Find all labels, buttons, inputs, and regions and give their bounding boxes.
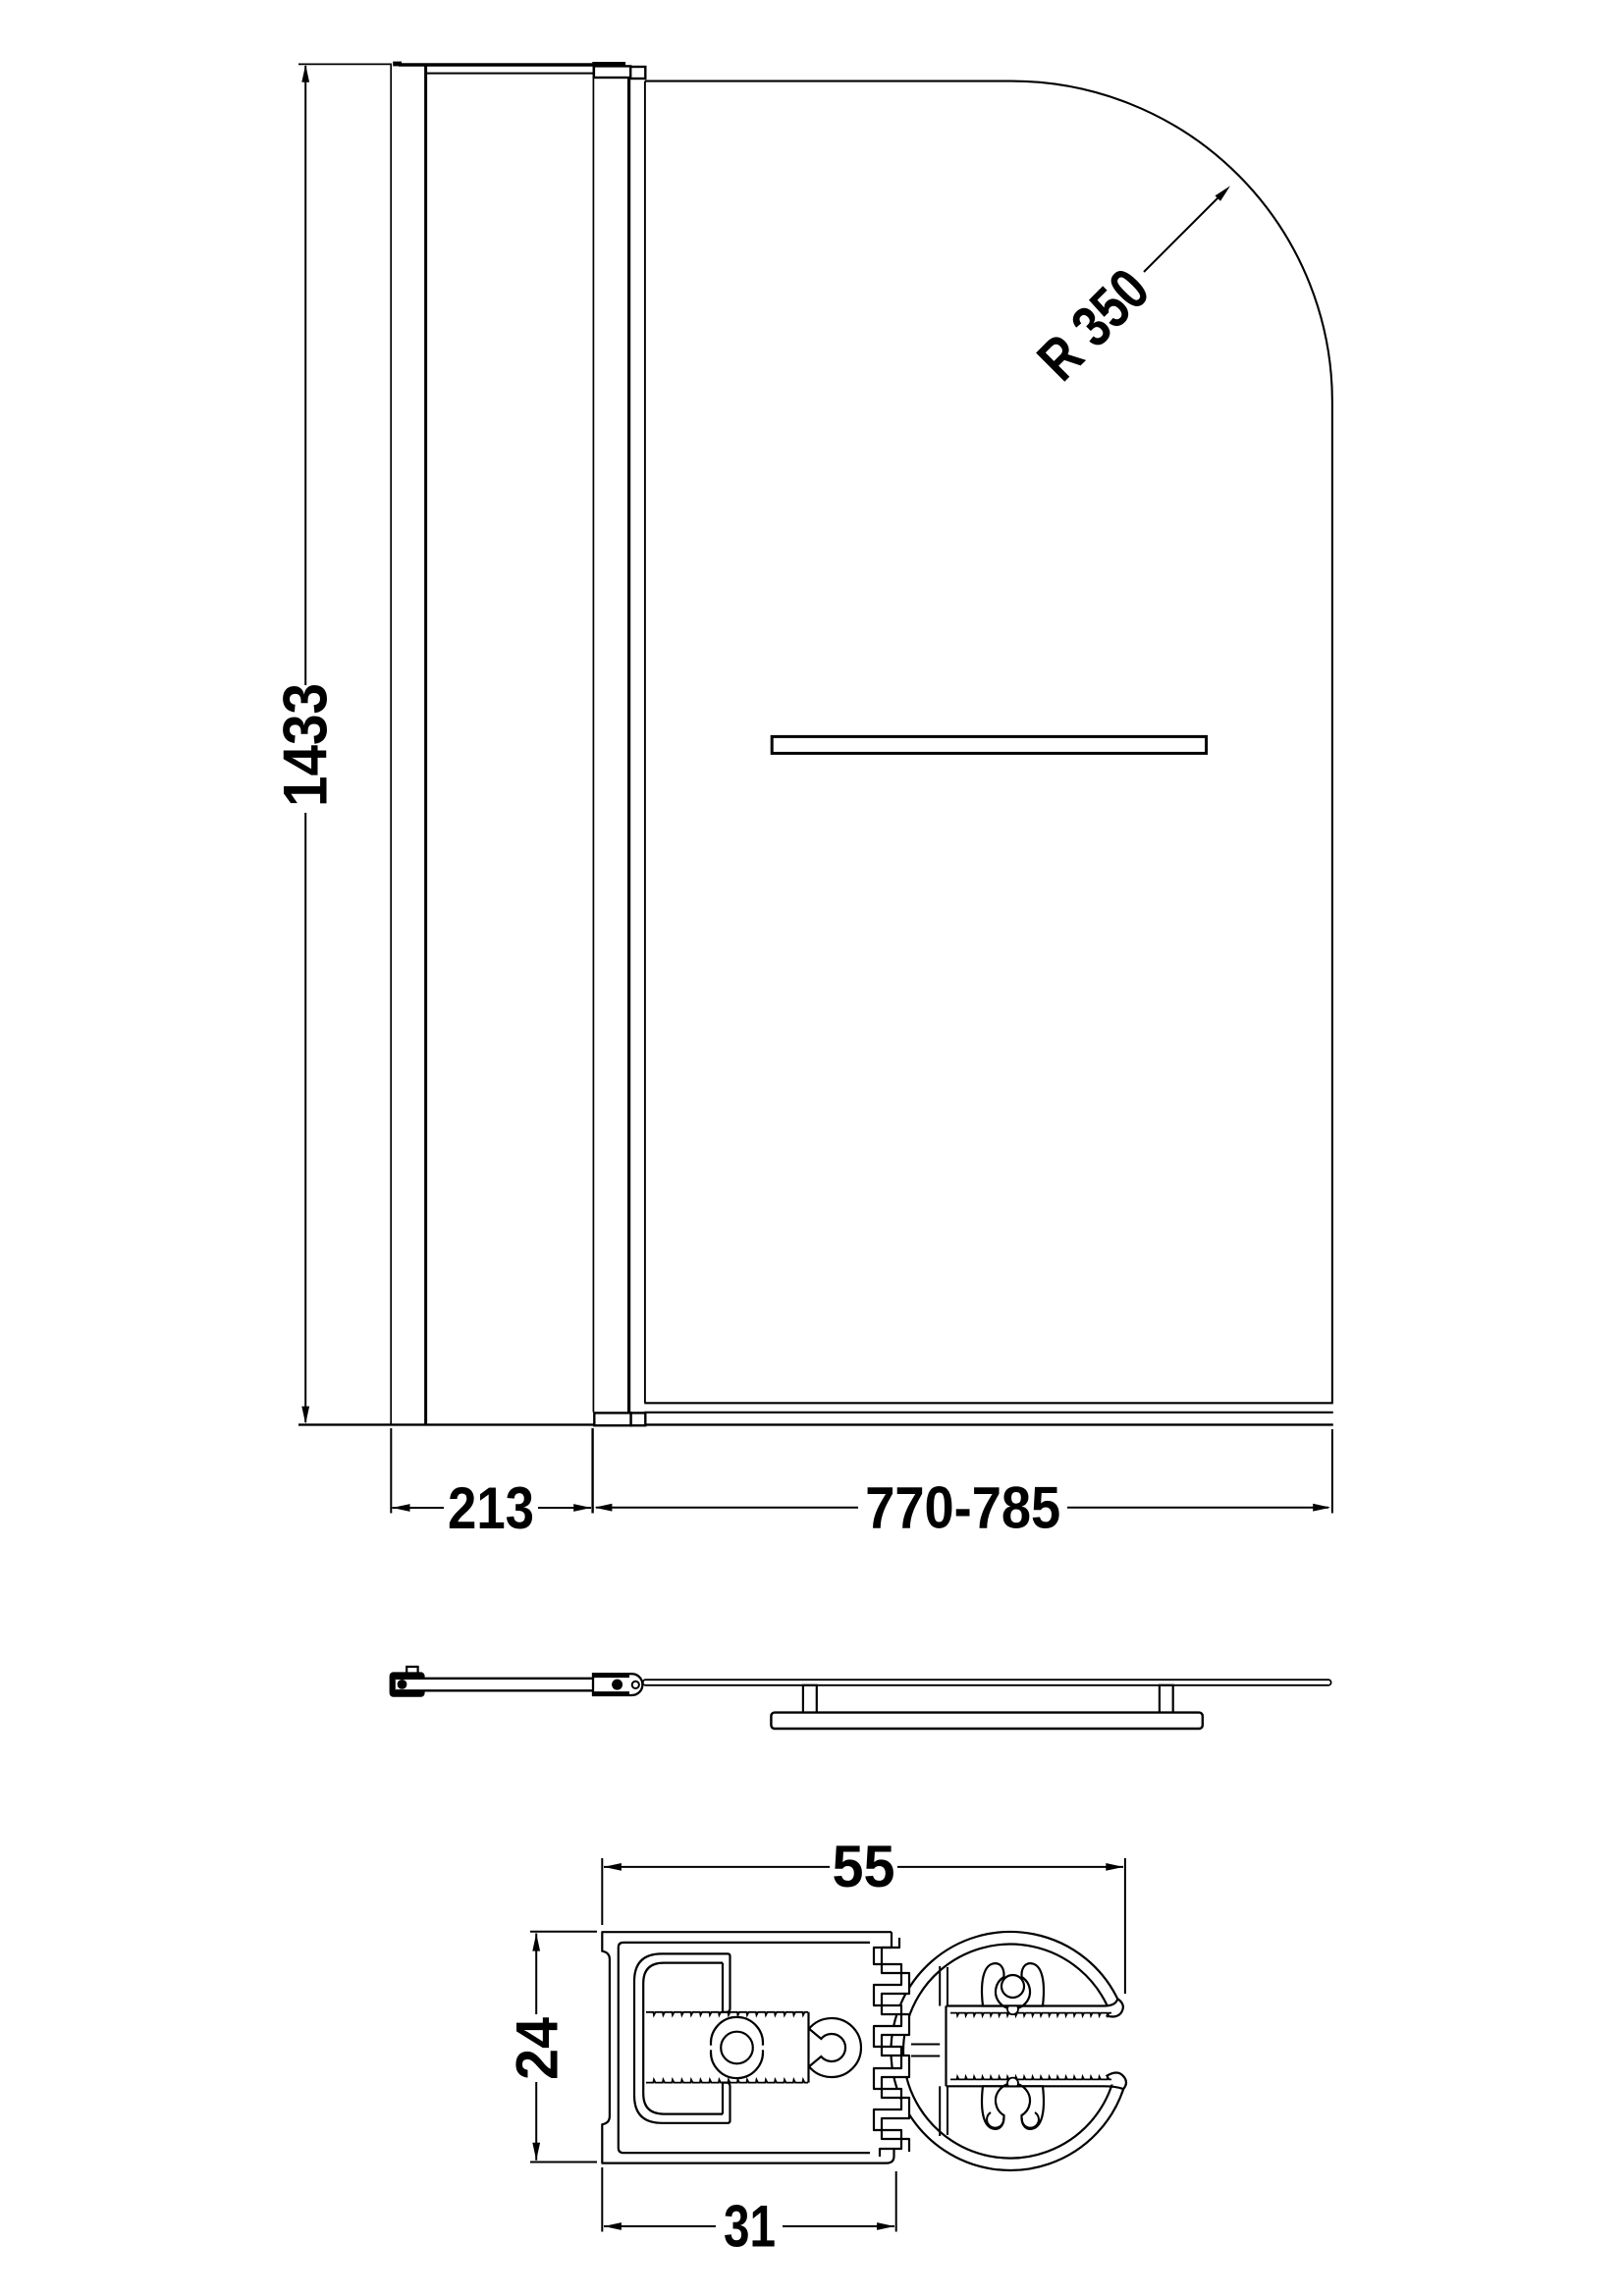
svg-text:213: 213	[448, 1475, 534, 1541]
svg-text:55: 55	[833, 1834, 895, 1899]
svg-text:1433: 1433	[272, 683, 341, 807]
svg-text:770-785: 770-785	[865, 1475, 1060, 1541]
svg-text:24: 24	[505, 2016, 570, 2080]
svg-text:31: 31	[724, 2194, 776, 2260]
